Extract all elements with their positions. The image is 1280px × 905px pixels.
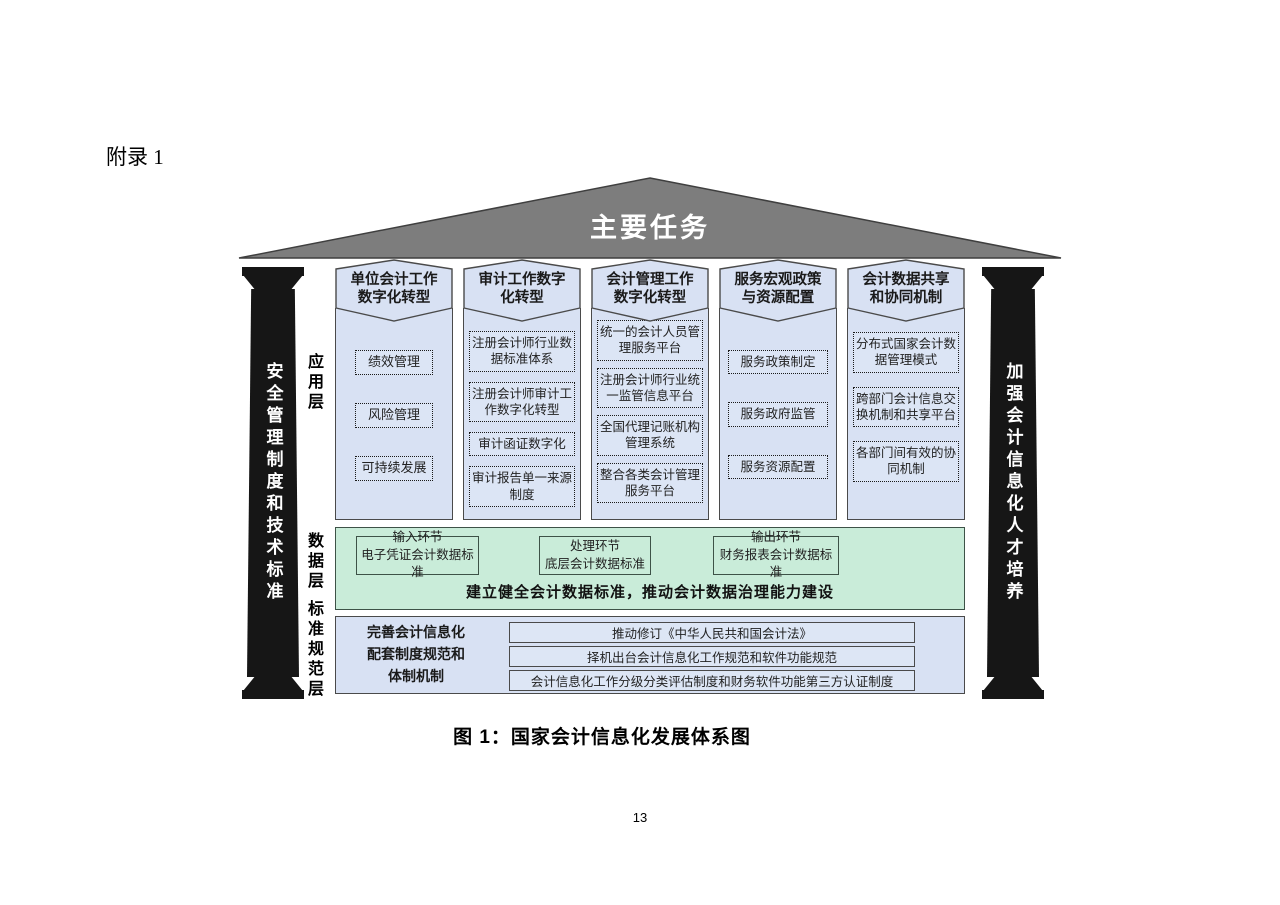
roof: 主要任务 xyxy=(237,176,1063,260)
data-standard-box: 输入环节 电子凭证会计数据标准 xyxy=(356,536,479,575)
column-body: 注册会计师行业数据标准体系 注册会计师审计工作数字化转型 审计函证数字化 审计报… xyxy=(463,308,581,520)
column-macro-policy: 服务宏观政策与资源配置 服务政策制定 服务政府监管 服务资源配置 xyxy=(719,259,837,520)
data-standard-box: 输出环节 财务报表会计数据标准 xyxy=(713,536,839,575)
data-layer: 输入环节 电子凭证会计数据标准 处理环节 底层会计数据标准 输出环节 财务报表会… xyxy=(335,527,965,610)
task-item: 绩效管理 xyxy=(355,350,433,375)
column-header: 会计管理工作数字化转型 xyxy=(591,263,709,315)
column-header-banner: 会计管理工作数字化转型 xyxy=(591,259,709,323)
right-pillar-label: 加强会计信息化人才培养 xyxy=(982,267,1044,699)
standards-label-line: 体制机制 xyxy=(388,666,444,688)
column-data-sharing: 会计数据共享和协同机制 分布式国家会计数据管理模式 跨部门会计信息交换机制和共享… xyxy=(847,259,965,520)
standards-label: 完善会计信息化 配套制度规范和 体制机制 xyxy=(346,617,486,693)
task-item: 审计函证数字化 xyxy=(469,432,575,456)
task-item: 服务政策制定 xyxy=(728,350,828,374)
column-header: 审计工作数字化转型 xyxy=(463,263,581,315)
layer-label-data: 数据层 xyxy=(305,532,321,592)
data-standard-box: 处理环节 底层会计数据标准 xyxy=(539,536,651,575)
task-item: 全国代理记账机构管理系统 xyxy=(597,415,703,456)
left-pillar: 安全管理制度和技术标准 xyxy=(242,267,304,699)
column-header: 单位会计工作数字化转型 xyxy=(335,263,453,315)
standards-rows: 推动修订《中华人民共和国会计法》 择机出台会计信息化工作规范和软件功能规范 会计… xyxy=(509,622,915,694)
column-body: 服务政策制定 服务政府监管 服务资源配置 xyxy=(719,308,837,520)
column-body: 绩效管理 风险管理 可持续发展 xyxy=(335,308,453,520)
task-item: 风险管理 xyxy=(355,403,433,428)
data-layer-summary: 建立健全会计数据标准，推动会计数据治理能力建设 xyxy=(336,581,964,602)
standards-row: 会计信息化工作分级分类评估制度和财务软件功能第三方认证制度 xyxy=(509,670,915,691)
task-item: 可持续发展 xyxy=(355,456,433,481)
data-box-detail: 电子凭证会计数据标准 xyxy=(357,547,478,582)
task-item: 整合各类会计管理服务平台 xyxy=(597,463,703,504)
task-item: 各部门间有效的协同机制 xyxy=(853,441,959,482)
document-page: 附录 1 主要任务 安全管理制度和技术标准 加强会计信息化人 xyxy=(0,0,1280,905)
task-item: 服务政府监管 xyxy=(728,402,828,426)
standards-row: 择机出台会计信息化工作规范和软件功能规范 xyxy=(509,646,915,667)
figure-caption: 图 1：国家会计信息化发展体系图 xyxy=(0,722,1204,749)
column-header-banner: 审计工作数字化转型 xyxy=(463,259,581,323)
column-header: 会计数据共享和协同机制 xyxy=(847,263,965,315)
layer-label-application: 应用层 xyxy=(305,353,321,413)
task-item: 跨部门会计信息交换机制和共享平台 xyxy=(853,387,959,428)
task-item: 注册会计师行业数据标准体系 xyxy=(469,331,575,372)
standards-label-line: 完善会计信息化 xyxy=(367,622,465,644)
roof-title: 主要任务 xyxy=(237,206,1063,245)
column-unit-accounting: 单位会计工作数字化转型 绩效管理 风险管理 可持续发展 xyxy=(335,259,453,520)
data-box-detail: 财务报表会计数据标准 xyxy=(714,547,838,582)
left-pillar-label: 安全管理制度和技术标准 xyxy=(242,267,304,699)
task-item: 审计报告单一来源制度 xyxy=(469,466,575,507)
task-item: 注册会计师审计工作数字化转型 xyxy=(469,382,575,423)
page-number: 13 xyxy=(0,810,1280,825)
column-audit: 审计工作数字化转型 注册会计师行业数据标准体系 注册会计师审计工作数字化转型 审… xyxy=(463,259,581,520)
column-accounting-management: 会计管理工作数字化转型 统一的会计人员管理服务平台 注册会计师行业统一监管信息平… xyxy=(591,259,709,520)
column-header-banner: 会计数据共享和协同机制 xyxy=(847,259,965,323)
task-item: 统一的会计人员管理服务平台 xyxy=(597,320,703,361)
appendix-label: 附录 1 xyxy=(106,141,164,171)
column-body: 分布式国家会计数据管理模式 跨部门会计信息交换机制和共享平台 各部门间有效的协同… xyxy=(847,308,965,520)
task-item: 服务资源配置 xyxy=(728,455,828,479)
standards-layer: 完善会计信息化 配套制度规范和 体制机制 推动修订《中华人民共和国会计法》 择机… xyxy=(335,616,965,694)
data-box-title: 输入环节 xyxy=(392,529,442,547)
task-item: 分布式国家会计数据管理模式 xyxy=(853,332,959,373)
column-header-banner: 服务宏观政策与资源配置 xyxy=(719,259,837,323)
column-header-banner: 单位会计工作数字化转型 xyxy=(335,259,453,323)
task-item: 注册会计师行业统一监管信息平台 xyxy=(597,368,703,409)
layer-label-standards: 标准规范层 xyxy=(305,600,321,700)
data-box-detail: 底层会计数据标准 xyxy=(545,556,645,574)
system-diagram: 主要任务 安全管理制度和技术标准 加强会计信息化人才培养 应用层 数据层 标准规… xyxy=(237,176,1063,706)
standards-label-line: 配套制度规范和 xyxy=(367,644,465,666)
data-box-title: 输出环节 xyxy=(751,529,801,547)
standards-row: 推动修订《中华人民共和国会计法》 xyxy=(509,622,915,643)
right-pillar: 加强会计信息化人才培养 xyxy=(982,267,1044,699)
data-box-title: 处理环节 xyxy=(570,538,620,556)
application-layer: 单位会计工作数字化转型 绩效管理 风险管理 可持续发展 审计工作数字化转型 注册… xyxy=(335,259,965,520)
column-header: 服务宏观政策与资源配置 xyxy=(719,263,837,315)
column-body: 统一的会计人员管理服务平台 注册会计师行业统一监管信息平台 全国代理记账机构管理… xyxy=(591,308,709,520)
